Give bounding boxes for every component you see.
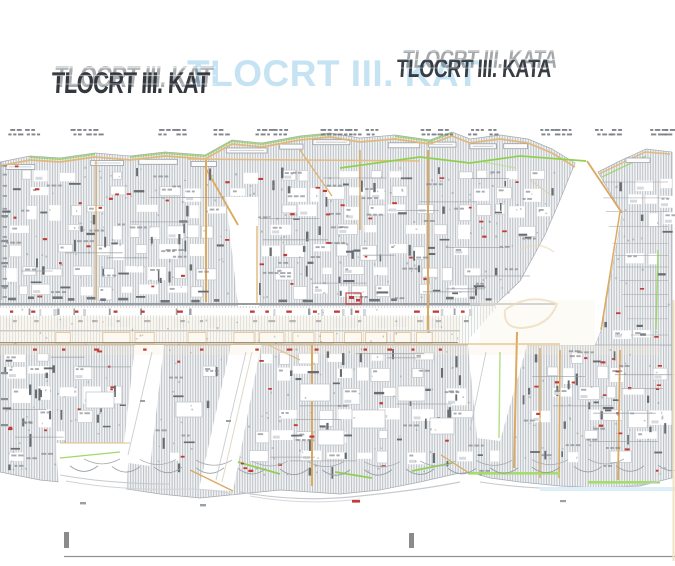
svg-text:TLOCRT III. KAT: TLOCRT III. KAT xyxy=(53,60,214,94)
